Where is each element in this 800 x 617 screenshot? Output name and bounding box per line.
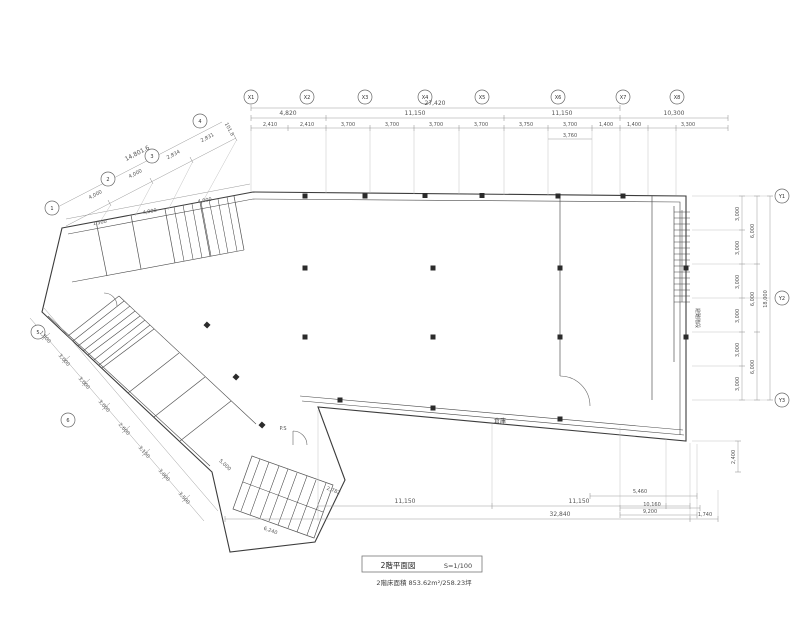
dim-label: 3,000 bbox=[97, 399, 111, 414]
grid-bubble-label: Y2 bbox=[778, 296, 785, 302]
dim-label: 1,500 bbox=[92, 219, 107, 228]
grid-bubble-label: X7 bbox=[620, 95, 627, 101]
dim-label: 10,300 bbox=[664, 110, 685, 117]
dim-label: 2,831 bbox=[200, 132, 215, 144]
dim-label: 2,400 bbox=[731, 450, 737, 464]
dim-label: 1,400 bbox=[627, 122, 641, 128]
grid-bubble-label: Y1 bbox=[778, 194, 785, 200]
dim-label: 11,150 bbox=[569, 498, 590, 505]
dim-label: 6,000 bbox=[750, 292, 756, 306]
door-arcs bbox=[104, 293, 590, 445]
floor-area-note: 2階床面積 853.62m²/258.23坪 bbox=[376, 578, 472, 587]
dim-label: 1,740 bbox=[698, 512, 712, 518]
grid-bubble-label: 4 bbox=[198, 119, 201, 125]
dim-label: 3,000 bbox=[157, 468, 171, 483]
dim-label: 6,000 bbox=[750, 360, 756, 374]
grid-bubble-label: X3 bbox=[362, 95, 369, 101]
dim-label: 3,700 bbox=[385, 122, 399, 128]
grid-bubble-label: X5 bbox=[479, 95, 486, 101]
floor-plan-drawing: X1 X2 X3 X4 X5 X6 X7 X8 Y1 Y2 Y3 1 2 3 4… bbox=[0, 0, 800, 617]
dim-label: 4,000 bbox=[88, 189, 103, 201]
dim-label: 5,000 bbox=[217, 458, 232, 472]
dimension-lines bbox=[30, 105, 773, 522]
dim-label: 3,000 bbox=[735, 207, 741, 221]
title-block: 2階平面図 S=1/100 2階床面積 853.62m²/258.23坪 bbox=[362, 556, 482, 587]
dim-label: 18,000 bbox=[763, 290, 769, 308]
dim-label: 101.8 bbox=[223, 122, 235, 137]
dim-label: 3,000 bbox=[77, 376, 91, 391]
dim-label: 4,000 bbox=[128, 168, 143, 180]
dim-label: 3,000 bbox=[735, 377, 741, 391]
dim-label: 3,700 bbox=[429, 122, 443, 128]
floor-plan-page: X1 X2 X3 X4 X5 X6 X7 X8 Y1 Y2 Y3 1 2 3 4… bbox=[0, 0, 800, 617]
dim-label: 3,000 bbox=[735, 275, 741, 289]
drawing-title: 2階平面図 bbox=[381, 560, 416, 570]
dim-label: 3,750 bbox=[519, 122, 533, 128]
room-label-ps: P.S bbox=[280, 426, 287, 432]
drawing-scale: S=1/100 bbox=[444, 562, 472, 570]
dim-label: 9,200 bbox=[643, 509, 657, 515]
grid-bubbles: X1 X2 X3 X4 X5 X6 X7 X8 Y1 Y2 Y3 1 2 3 4… bbox=[31, 90, 789, 427]
dim-label: 3,000 bbox=[57, 353, 71, 368]
grid-bubble-label: 1 bbox=[50, 206, 53, 212]
grid-bubble-label: 2 bbox=[106, 177, 109, 183]
dim-label: 3,700 bbox=[341, 122, 355, 128]
dim-label: 3,150 bbox=[137, 445, 151, 460]
dim-label: 3,760 bbox=[563, 133, 577, 139]
room-label-escape-stair: 避難階段 bbox=[694, 308, 701, 328]
grid-bubble-label: Y3 bbox=[778, 398, 785, 404]
dim-label: 27,420 bbox=[425, 100, 446, 107]
dim-label: 4,000 bbox=[197, 197, 212, 206]
dim-label: 3,500 bbox=[177, 491, 191, 506]
dim-label: 2,410 bbox=[263, 122, 277, 128]
grid-bubble-label: 3 bbox=[150, 154, 153, 160]
dim-label: 2,600 bbox=[117, 422, 131, 437]
grid-bubble-label: X6 bbox=[555, 95, 562, 101]
dim-label: 11,150 bbox=[552, 110, 573, 117]
dim-label: 4,000 bbox=[142, 208, 157, 217]
dim-label: 4,820 bbox=[279, 110, 296, 117]
dim-label: 3,000 bbox=[735, 343, 741, 357]
dim-label: 5,460 bbox=[633, 489, 647, 495]
room-label-strip: 倉庫 bbox=[494, 417, 506, 425]
grid-bubble-label: X8 bbox=[674, 95, 681, 101]
dim-label: 1,400 bbox=[599, 122, 613, 128]
dim-label: 3,700 bbox=[563, 122, 577, 128]
dim-label: 32,840 bbox=[550, 511, 571, 518]
dim-label: 6,240 bbox=[263, 526, 279, 537]
dim-label: 3,300 bbox=[681, 122, 695, 128]
grid-bubble-label: X1 bbox=[248, 95, 255, 101]
columns bbox=[203, 193, 688, 429]
dim-label: 11,150 bbox=[395, 498, 416, 505]
dim-label: 6,000 bbox=[750, 224, 756, 238]
stair-right-shaft bbox=[674, 210, 690, 302]
dim-label: 3,700 bbox=[474, 122, 488, 128]
room-labels: 倉庫 避難階段 P.S bbox=[280, 308, 702, 432]
dim-label: 2,410 bbox=[300, 122, 314, 128]
dim-label: 2,782 bbox=[326, 486, 342, 497]
dim-label: 11,150 bbox=[405, 110, 426, 117]
dimension-labels: 27,420 4,820 11,150 11,150 10,300 2,410 … bbox=[38, 100, 769, 536]
dim-label: 3,000 bbox=[735, 241, 741, 255]
grid-bubble-label: 6 bbox=[66, 418, 69, 424]
dim-label: 2,834 bbox=[166, 149, 181, 161]
dim-label: 3,000 bbox=[735, 309, 741, 323]
dim-label: 10,160 bbox=[643, 502, 661, 508]
stair-top-wing bbox=[174, 197, 237, 261]
grid-bubble-label: X2 bbox=[304, 95, 311, 101]
